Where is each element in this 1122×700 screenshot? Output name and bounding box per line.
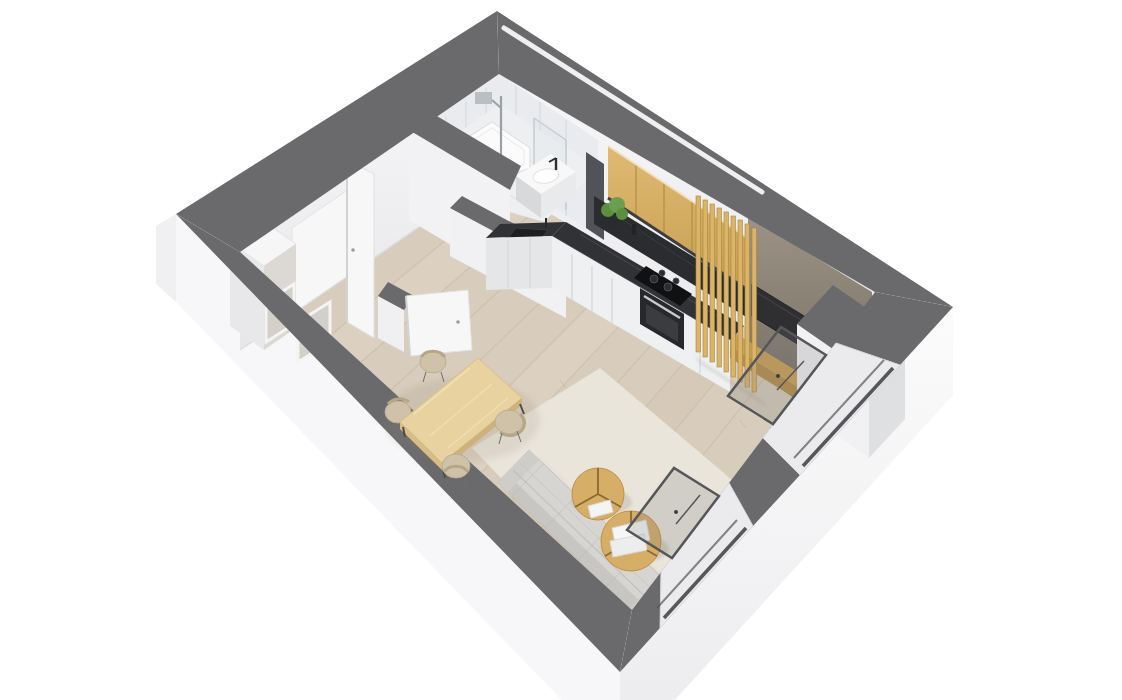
- bottle: [638, 228, 642, 238]
- bottle: [632, 224, 636, 235]
- door-handle: [456, 320, 460, 324]
- window-handle: [776, 374, 780, 378]
- window-handle: [674, 510, 678, 514]
- open-interior-door-leaf: [406, 290, 472, 356]
- exterior-face-west: [156, 214, 176, 302]
- floor-plan-render: [0, 0, 1122, 700]
- apartment-3d-floor-plan: [0, 0, 1122, 700]
- shower-head: [475, 92, 492, 104]
- open-entry-door-leaf: [347, 160, 374, 338]
- door-handle: [351, 248, 355, 252]
